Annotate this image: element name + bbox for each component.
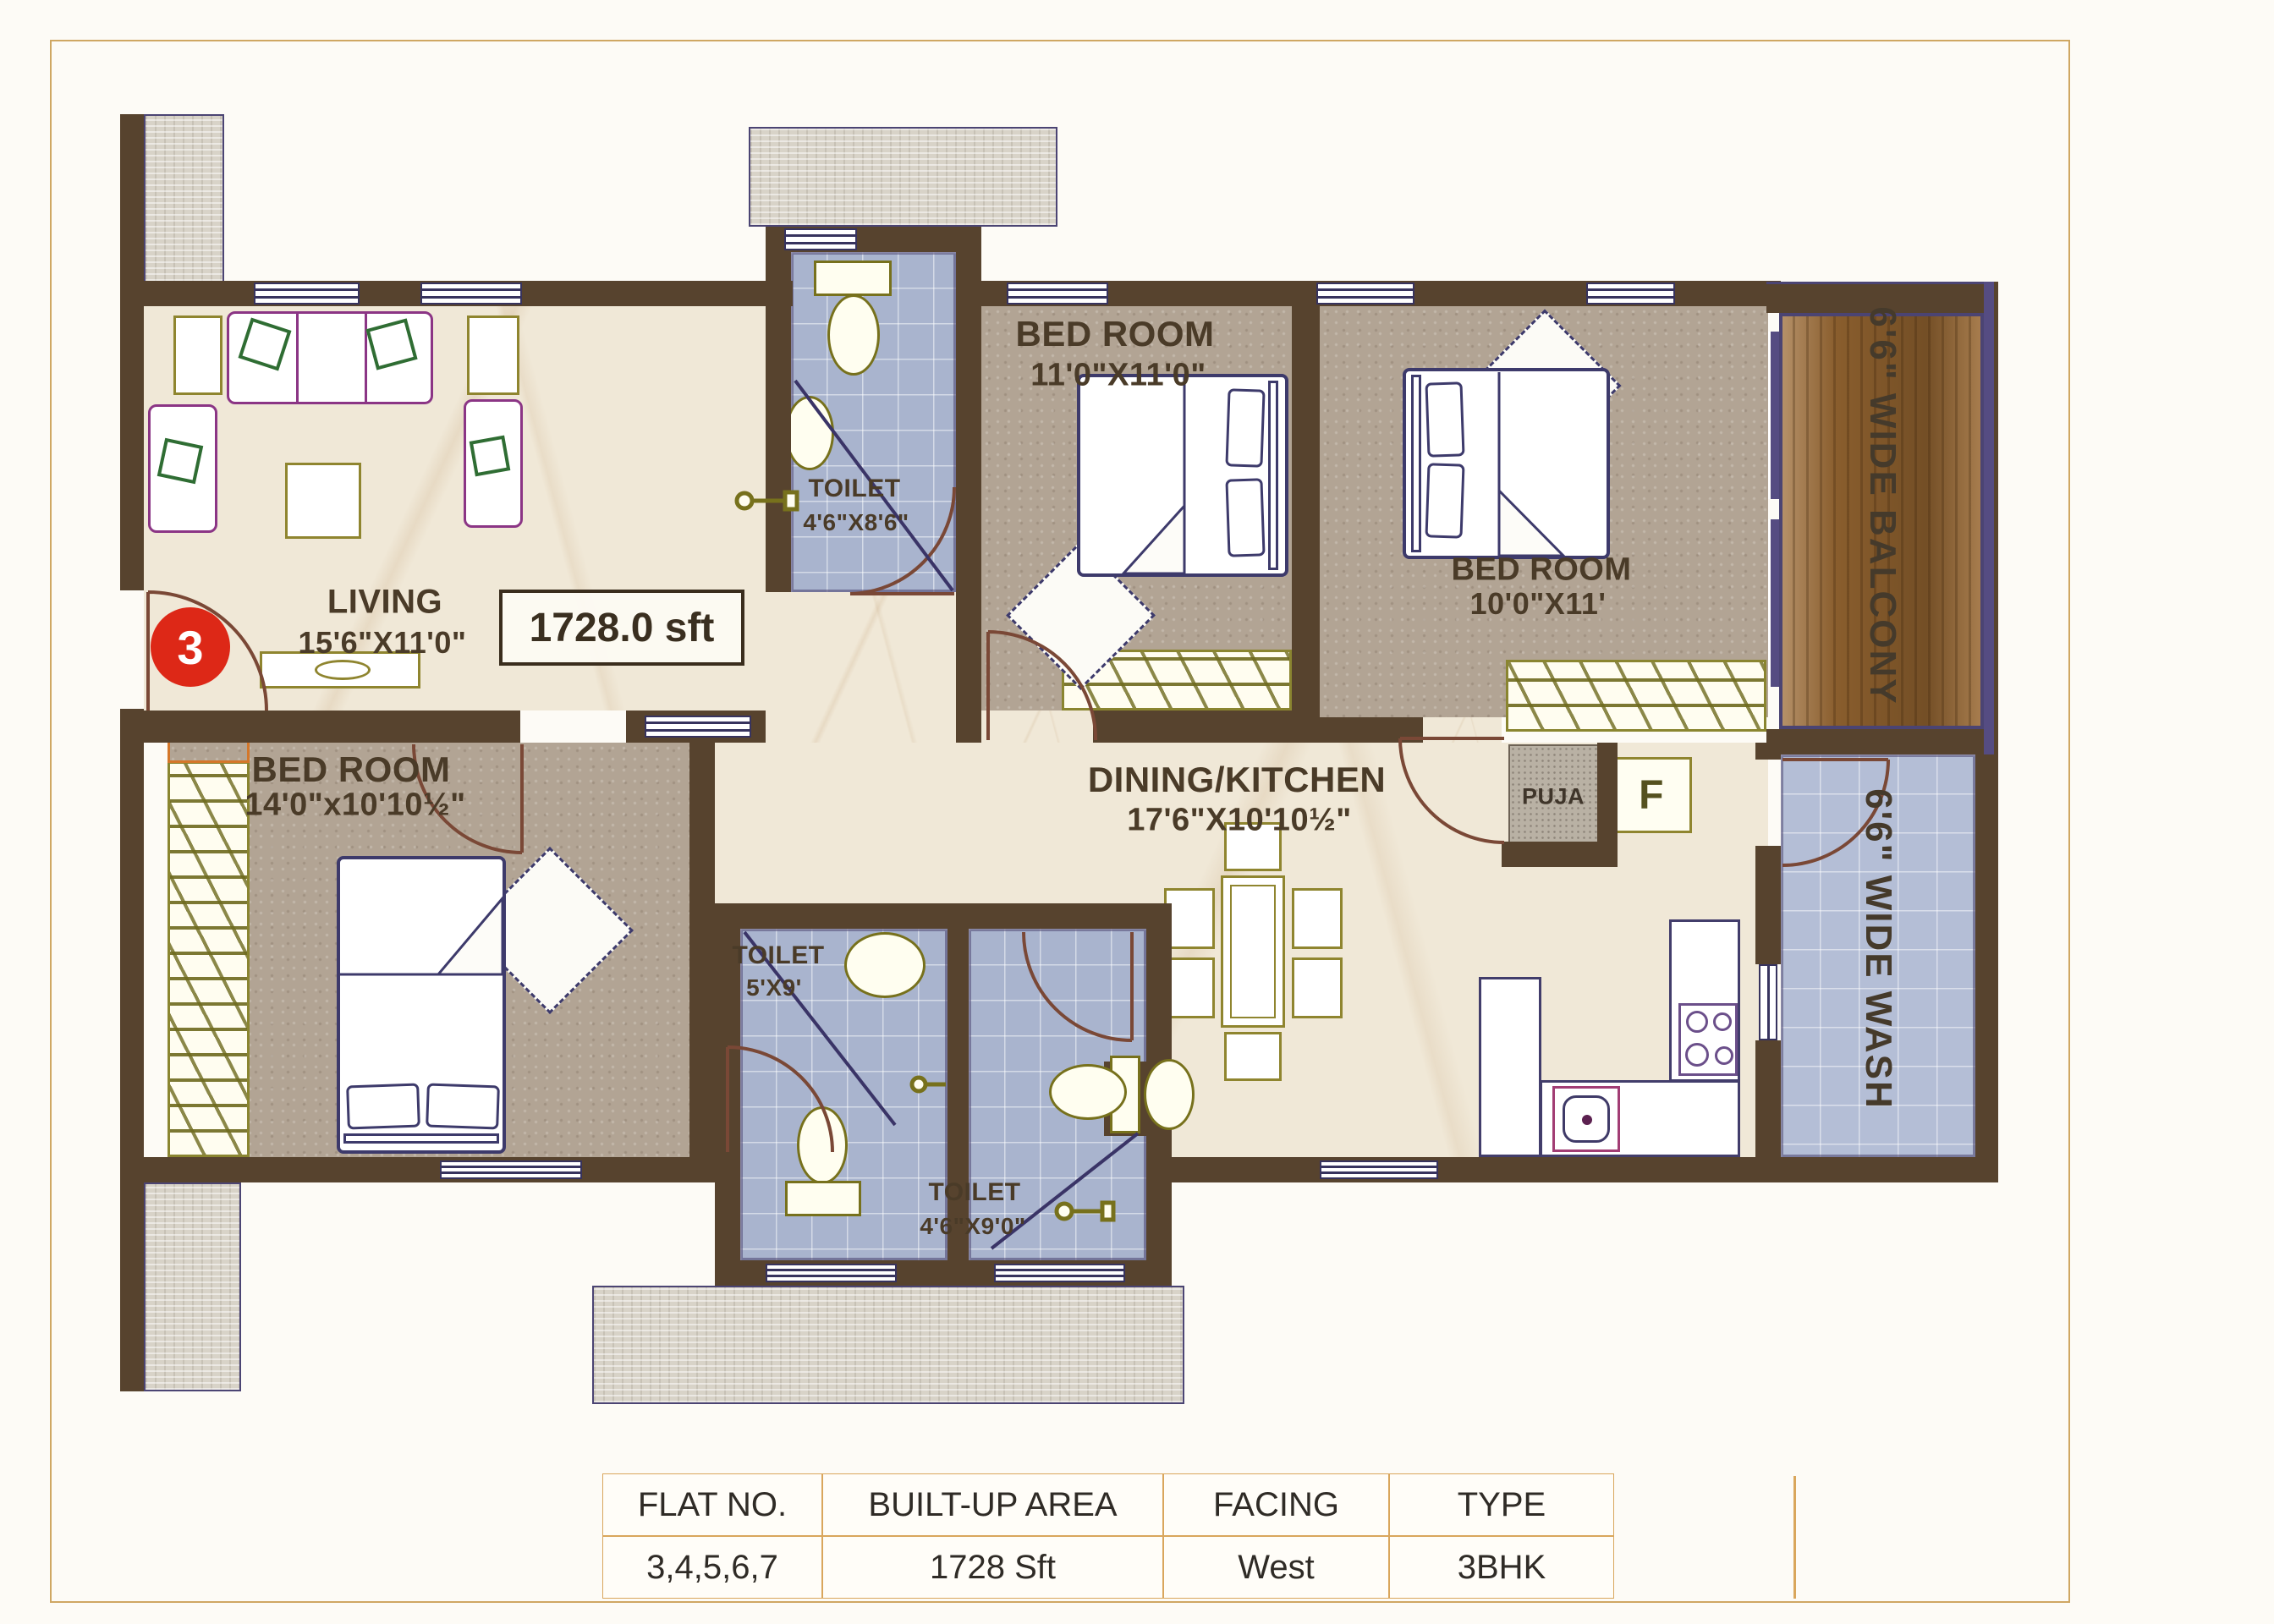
- toilet-mid-door-arc: [728, 1047, 832, 1152]
- room-dims-toilet-low: 4'6"X9'0": [920, 1213, 1025, 1240]
- room-label-balcony: 6'6" WIDE BALCONY: [1861, 306, 1903, 705]
- table-header-type: TYPE: [1389, 1473, 1614, 1536]
- room-label-puja: PUJA: [1522, 784, 1585, 810]
- bed-sheet-fold: [1123, 377, 1184, 573]
- toilet-low-door-arc: [1024, 932, 1132, 1040]
- room-dims-bedroom-top: 11'0"X11'0": [1030, 358, 1206, 394]
- room-dims-toilet-mid: 5'X9': [746, 974, 802, 1001]
- bedroom-right-door-arc: [1400, 738, 1504, 842]
- room-label-bedroom-top: BED ROOM: [1016, 314, 1215, 354]
- table-cell-built-up: 1728 Sft: [822, 1536, 1163, 1599]
- fridge-label: F: [1639, 772, 1664, 819]
- unit-number-badge: 3: [151, 607, 230, 687]
- room-label-toilet-top: TOILET: [808, 475, 900, 503]
- table-header-flat-no: FLAT NO.: [602, 1473, 822, 1536]
- room-label-bedroom-right: BED ROOM: [1452, 552, 1632, 589]
- room-label-toilet-low: TOILET: [928, 1178, 1020, 1207]
- tap-icon: [912, 1078, 946, 1091]
- table-edge-line: [1793, 1476, 1796, 1599]
- floor-plan: 3 LIVING 15'6"X11'0" 1728.0 sft TOILET 4…: [0, 0, 2274, 1624]
- room-dims-living: 15'6"X11'0": [299, 625, 467, 661]
- table-cell-type: 3BHK: [1389, 1536, 1614, 1599]
- room-label-living: LIVING: [327, 584, 442, 622]
- room-dims-bedroom-left: 14'0"x10'10½": [244, 787, 465, 824]
- bed-sheet-fold: [1499, 372, 1563, 556]
- area-box: 1728.0 sft: [499, 590, 744, 666]
- bed-sheet-fold: [340, 898, 503, 974]
- table-cell-facing: West: [1163, 1536, 1389, 1599]
- area-value: 1728.0 sft: [530, 605, 715, 651]
- floor-plan-page: { "plan": { "badge": "3", "area": "1728.…: [0, 0, 2274, 1624]
- room-label-toilet-mid: TOILET: [732, 941, 824, 970]
- room-dims-bedroom-right: 10'0"X11': [1470, 586, 1607, 622]
- table-header-built-up: BUILT-UP AREA: [822, 1473, 1163, 1536]
- room-label-wash: 6'6" WIDE WASH: [1857, 788, 1899, 1110]
- bedroom-top-door-arc: [988, 632, 1096, 740]
- table-cell-flat-no: 3,4,5,6,7: [602, 1536, 822, 1599]
- room-label-dining: DINING/KITCHEN: [1088, 760, 1386, 800]
- room-label-bedroom-left: BED ROOM: [252, 749, 451, 790]
- unit-number: 3: [177, 620, 203, 675]
- room-dims-toilet-top: 4'6"X8'6": [803, 509, 909, 536]
- table-header-facing: FACING: [1163, 1473, 1389, 1536]
- tap-icon: [737, 492, 797, 509]
- room-dims-dining: 17'6"X10'10½": [1127, 803, 1352, 839]
- summary-table: FLAT NO. BUILT-UP AREA FACING TYPE 3,4,5…: [602, 1473, 1614, 1599]
- tap-icon: [1057, 1203, 1113, 1220]
